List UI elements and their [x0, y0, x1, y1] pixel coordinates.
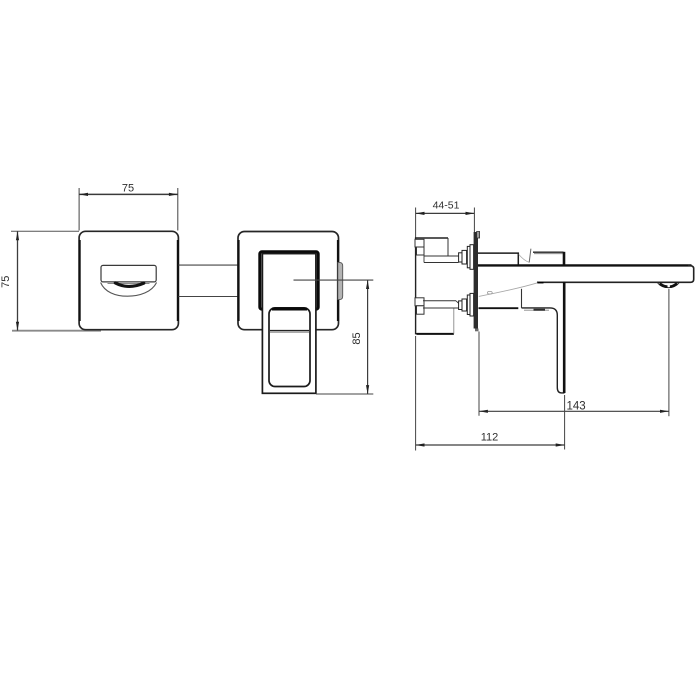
svg-text:143: 143 — [567, 401, 586, 413]
svg-text:75: 75 — [122, 183, 134, 195]
svg-text:85: 85 — [351, 332, 363, 344]
svg-text:44-51: 44-51 — [433, 200, 460, 212]
svg-text:112: 112 — [481, 431, 499, 443]
svg-text:75: 75 — [0, 276, 12, 288]
